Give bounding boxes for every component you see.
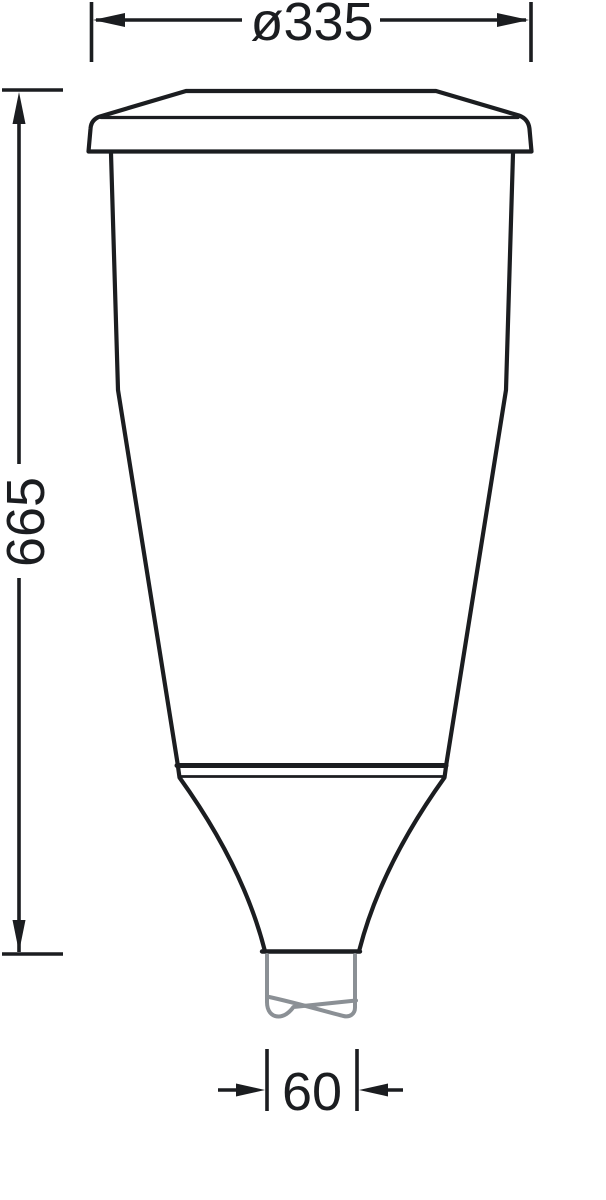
arrowhead-inward-left-icon: [236, 1084, 265, 1097]
top-diameter-label: ø335: [250, 0, 373, 52]
arrowhead-left-icon: [93, 13, 125, 27]
pole-right-side-break-cross: [267, 955, 355, 1016]
arrowhead-up-icon: [13, 92, 26, 124]
arrowhead-inward-right-icon: [359, 1084, 388, 1097]
technical-drawing-page: ø335 665 60: [0, 0, 606, 1200]
mounting-pole: [267, 955, 356, 1017]
luminaire-outline: [89, 91, 532, 952]
body-left-wall: [111, 154, 265, 950]
height-label: 665: [0, 477, 56, 567]
arrowhead-right-icon: [497, 13, 529, 27]
arrowhead-down-icon: [13, 920, 26, 952]
luminaire-dimension-drawing: ø335 665 60: [0, 0, 606, 1200]
body-right-wall: [360, 154, 514, 950]
dimension-arrowheads: [13, 13, 530, 1097]
spigot-diameter-label: 60: [282, 1062, 342, 1122]
cap-outline: [89, 91, 532, 152]
